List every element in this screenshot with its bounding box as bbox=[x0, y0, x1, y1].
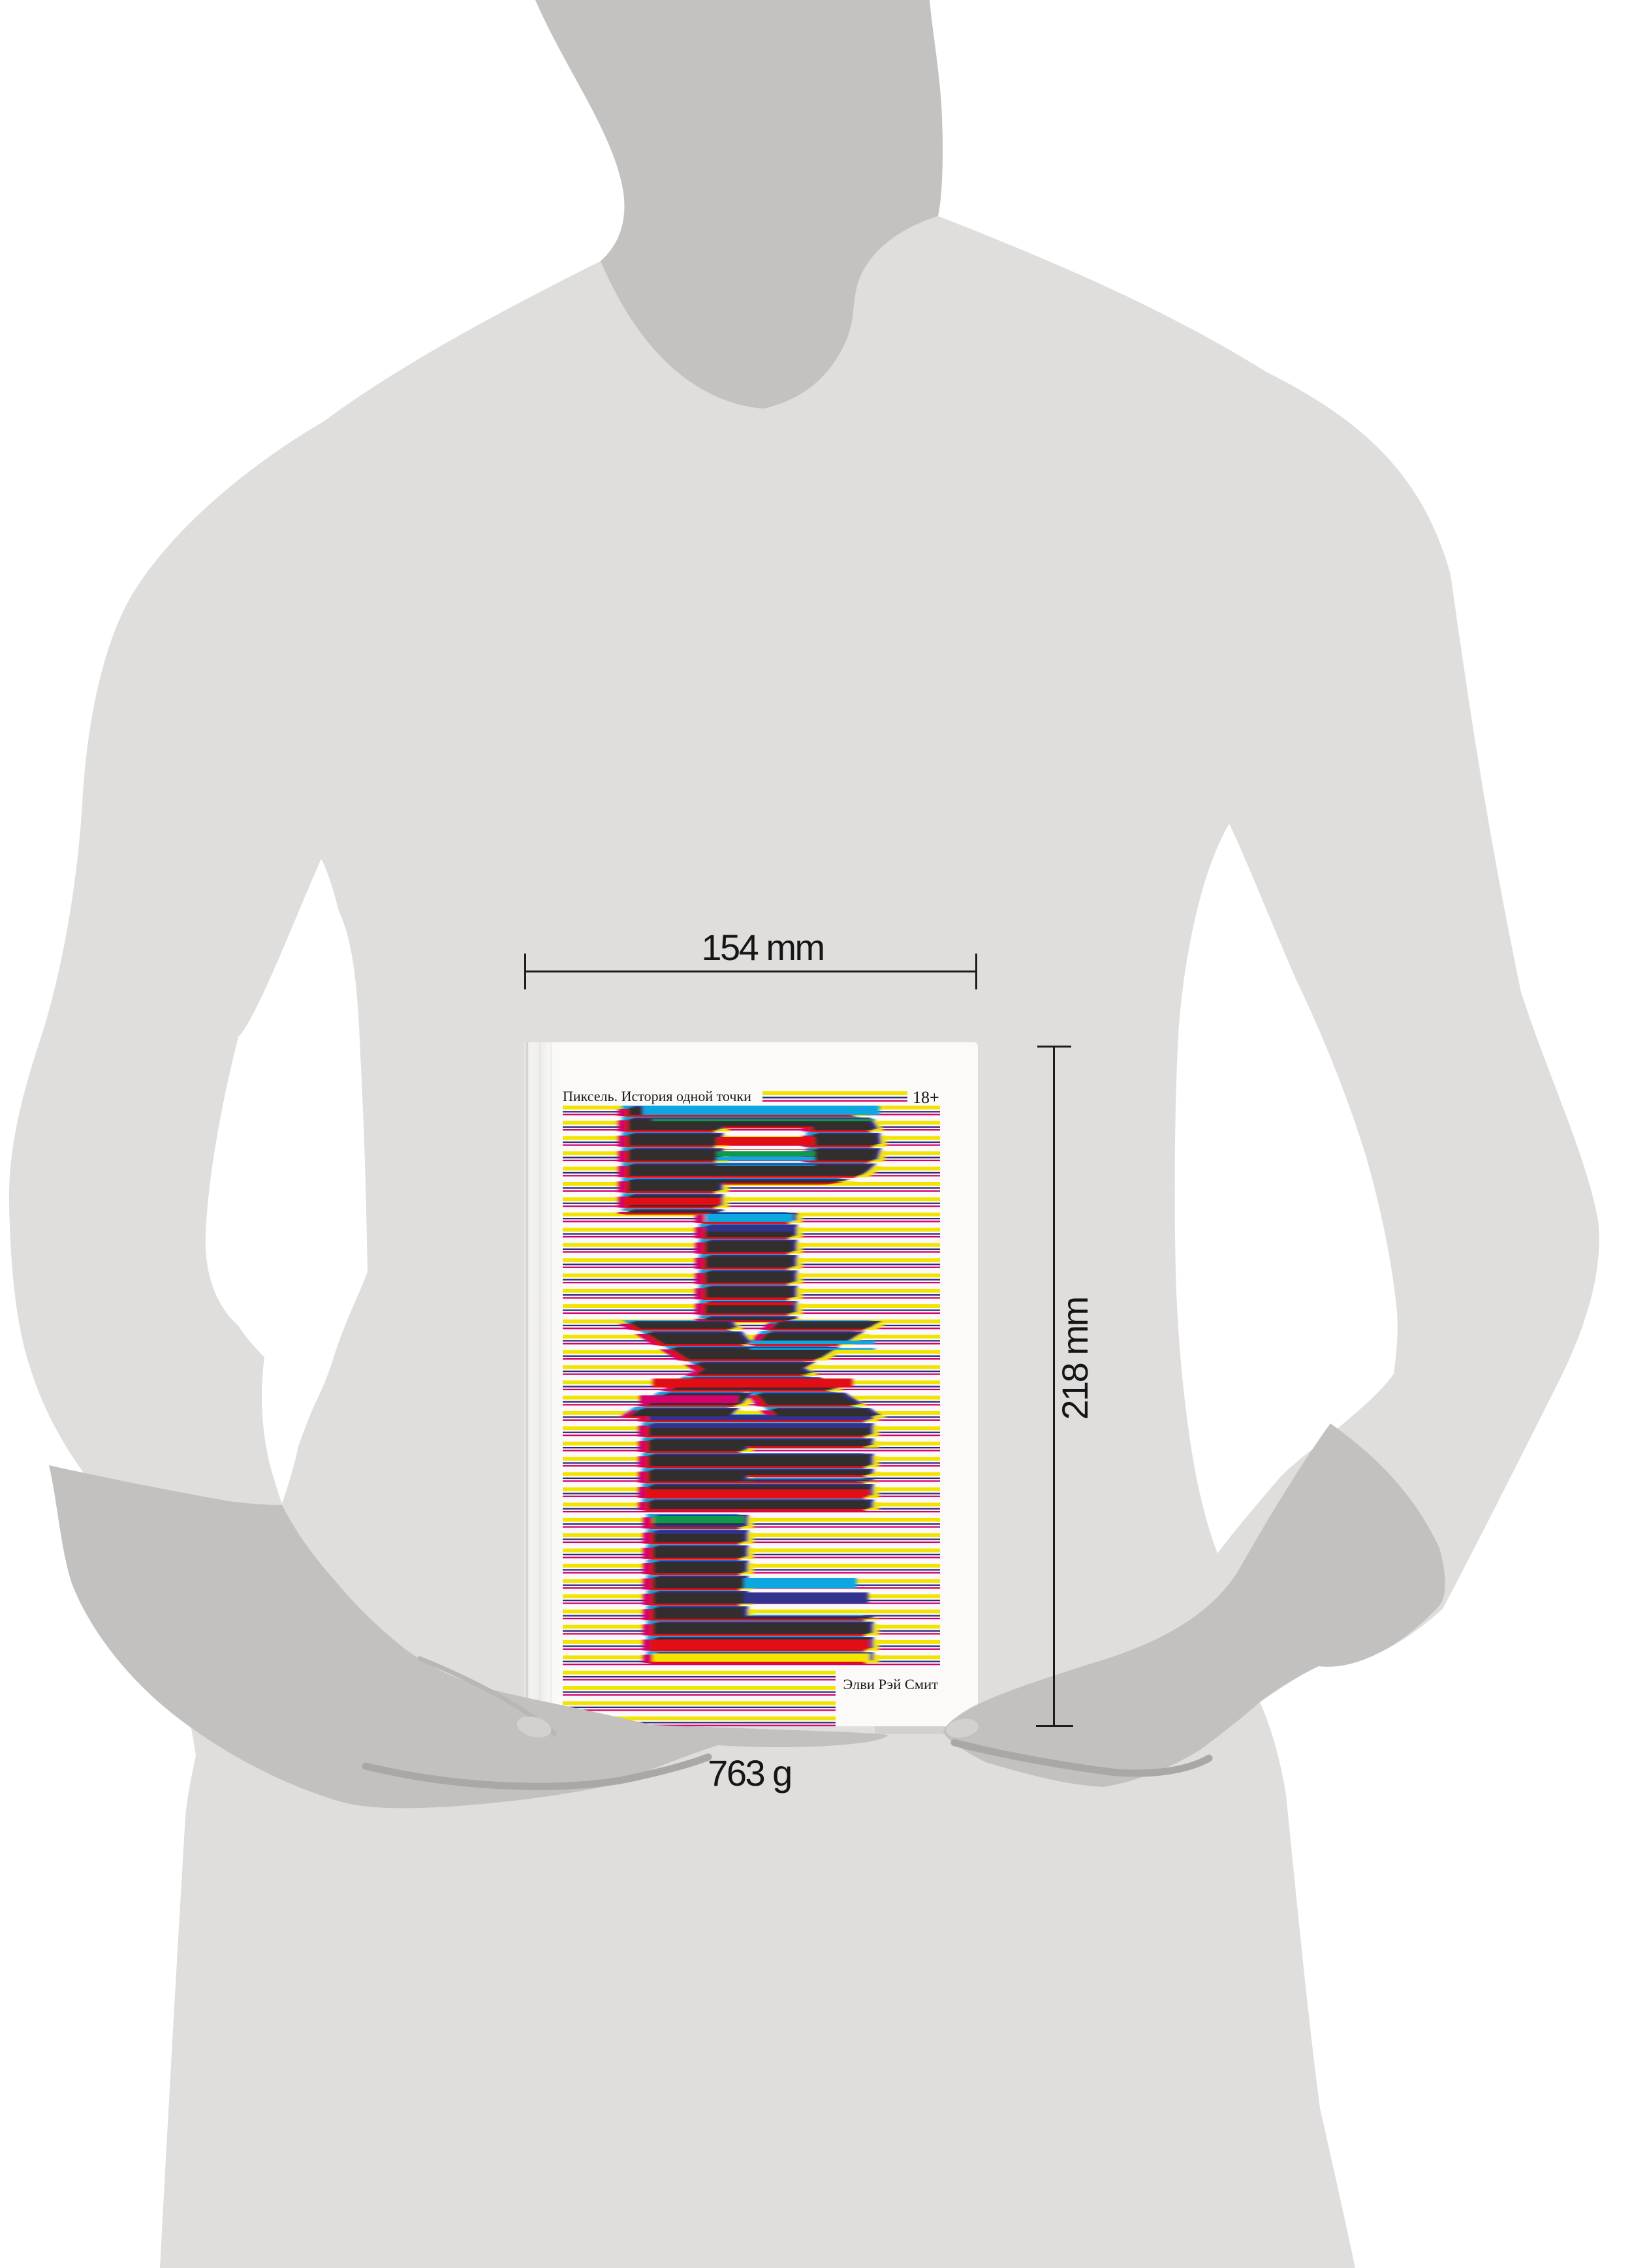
svg-text:154 mm: 154 mm bbox=[701, 927, 823, 968]
svg-text:218 mm: 218 mm bbox=[1054, 1297, 1095, 1420]
svg-text:763 g: 763 g bbox=[708, 1752, 791, 1794]
svg-text:Пиксель. История одной точки: Пиксель. История одной точки bbox=[563, 1088, 751, 1104]
svg-text:Элви Рэй Смит: Элви Рэй Смит bbox=[843, 1676, 938, 1692]
svg-text:18+: 18+ bbox=[913, 1088, 939, 1107]
